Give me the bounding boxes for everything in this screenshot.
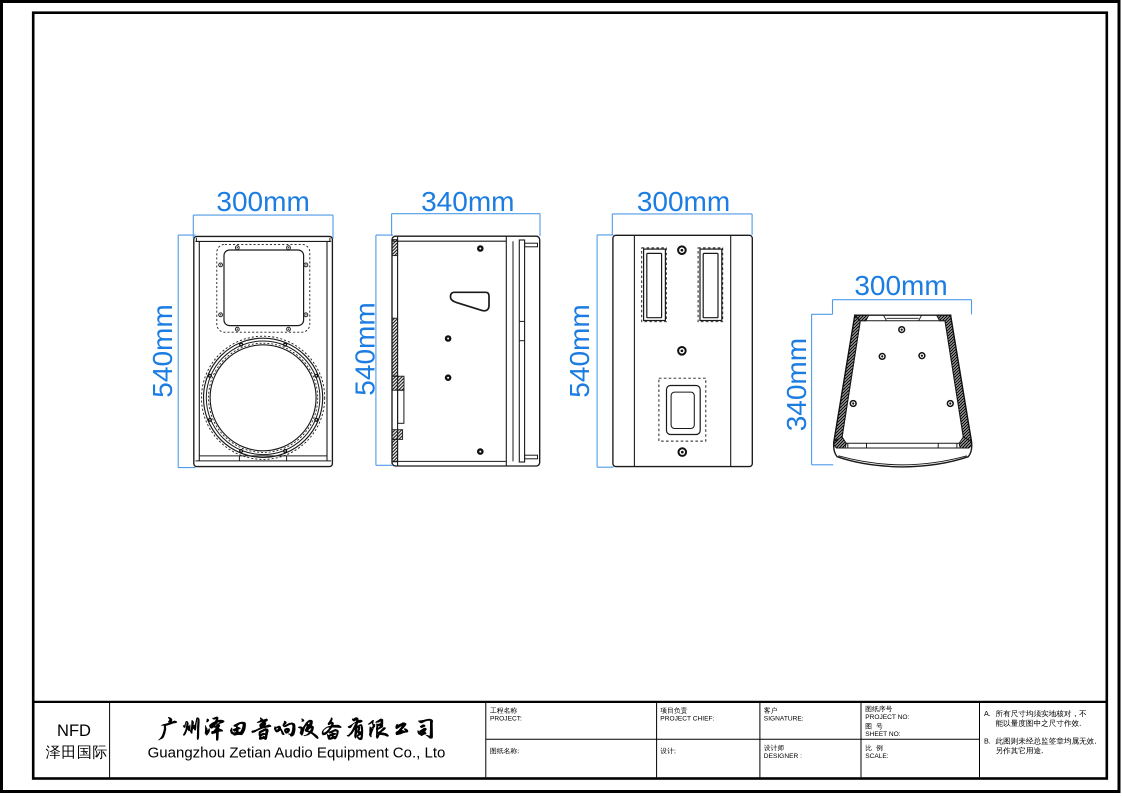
svg-text:DESIGNER :: DESIGNER :	[764, 753, 802, 760]
svg-text:B.: B.	[984, 737, 991, 746]
svg-text:NFD: NFD	[57, 722, 91, 740]
svg-text:SIGNATURE:: SIGNATURE:	[764, 716, 804, 723]
svg-text:PROJECT CHIEF:: PROJECT CHIEF:	[660, 716, 714, 723]
svg-text:300mm: 300mm	[216, 186, 309, 217]
svg-text:340mm: 340mm	[421, 186, 514, 217]
svg-text:540mm: 540mm	[350, 302, 381, 395]
svg-text:300mm: 300mm	[637, 186, 730, 217]
svg-text:340mm: 340mm	[781, 338, 812, 431]
svg-text:540mm: 540mm	[147, 304, 178, 397]
svg-text:SHEET NO:: SHEET NO:	[865, 731, 901, 738]
svg-text:540mm: 540mm	[564, 304, 595, 397]
svg-text:300mm: 300mm	[854, 270, 947, 301]
svg-text:Guangzhou Zetian Audio Equipme: Guangzhou Zetian Audio Equipment Co., Lt…	[148, 745, 446, 762]
svg-text:PROJECT:: PROJECT:	[490, 716, 522, 723]
svg-text:A.: A.	[984, 709, 991, 718]
svg-text:SCALE:: SCALE:	[865, 753, 889, 760]
svg-text:PROJECT NO:: PROJECT NO:	[865, 714, 909, 721]
